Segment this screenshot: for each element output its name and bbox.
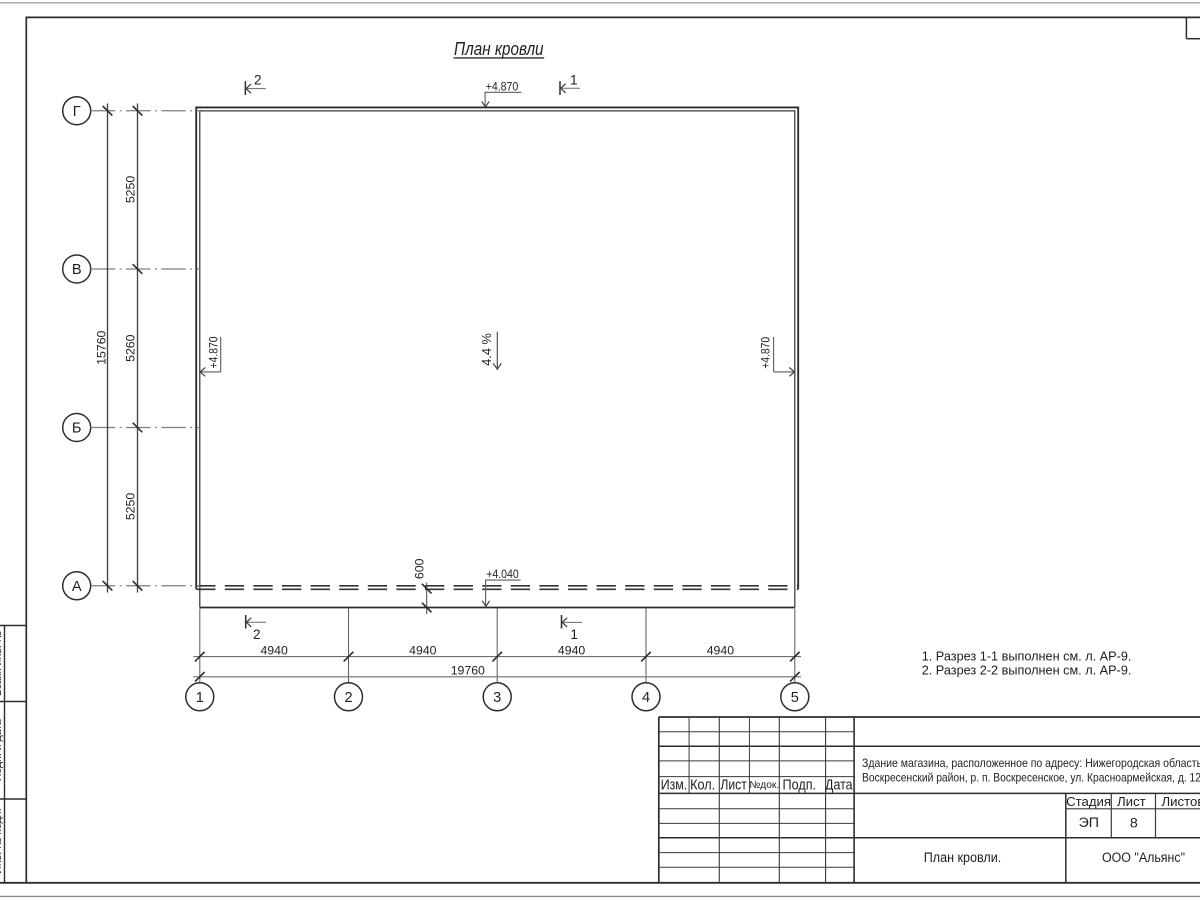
svg-text:№док.: №док. [749,780,779,791]
svg-text:2. Разрез 2-2 выполнен см. л.: 2. Разрез 2-2 выполнен см. л. АР-9. [922,664,1132,678]
svg-text:План кровли: План кровли [454,39,544,59]
svg-text:4.4 %: 4.4 % [479,333,494,366]
svg-text:Здание магазина, расположенное: Здание магазина, расположенное по адресу… [862,756,1200,770]
svg-text:5250: 5250 [123,176,137,204]
svg-text:2: 2 [254,72,262,87]
svg-text:1: 1 [196,690,204,706]
svg-text:Г: Г [73,104,81,120]
svg-text:Стадия: Стадия [1066,794,1111,809]
svg-text:5250: 5250 [123,493,137,521]
svg-text:4940: 4940 [260,644,288,658]
svg-text:600: 600 [412,558,426,579]
svg-text:4940: 4940 [558,644,586,658]
svg-text:1: 1 [570,627,578,642]
svg-text:3: 3 [493,690,501,706]
svg-text:В: В [72,262,82,278]
svg-text:+4.040: +4.040 [486,567,519,581]
svg-text:Воскресенский район, р. п. Вос: Воскресенский район, р. п. Воскресенское… [862,770,1200,784]
svg-text:19760: 19760 [451,664,485,678]
svg-text:Кол.: Кол. [690,777,715,793]
svg-text:5: 5 [791,690,799,706]
svg-text:2: 2 [253,627,261,642]
svg-text:Подп.: Подп. [783,777,817,793]
svg-text:Взам. инв. №: Взам. инв. № [0,631,4,696]
svg-text:Изм.: Изм. [661,777,688,793]
svg-text:Листов: Листов [1162,794,1200,809]
svg-text:Лист: Лист [720,777,747,793]
svg-text:2: 2 [344,690,352,706]
svg-text:Подп. и дата: Подп. и дата [0,719,4,781]
svg-text:ООО "Альянс": ООО "Альянс" [1102,850,1185,866]
svg-text:1: 1 [570,72,578,87]
svg-text:8: 8 [1130,816,1138,832]
svg-text:ЭП: ЭП [1079,815,1099,831]
svg-text:15760: 15760 [95,330,109,364]
svg-text:Инв. № подл.: Инв. № подл. [0,808,4,873]
svg-text:5260: 5260 [123,334,137,362]
svg-text:4940: 4940 [707,644,735,658]
svg-text:4940: 4940 [409,644,437,658]
svg-text:Лист: Лист [1117,794,1146,809]
svg-text:1. Разрез 1-1 выполнен см. л.: 1. Разрез 1-1 выполнен см. л. АР-9. [922,649,1132,663]
svg-text:А: А [72,579,82,595]
svg-text:+4.870: +4.870 [207,336,221,368]
svg-text:4: 4 [642,690,650,706]
svg-text:+4.870: +4.870 [486,79,519,93]
svg-text:Б: Б [72,421,82,437]
svg-text:+4.870: +4.870 [758,337,772,369]
svg-text:План кровли.: План кровли. [924,850,1002,866]
svg-text:Дата: Дата [825,777,853,793]
